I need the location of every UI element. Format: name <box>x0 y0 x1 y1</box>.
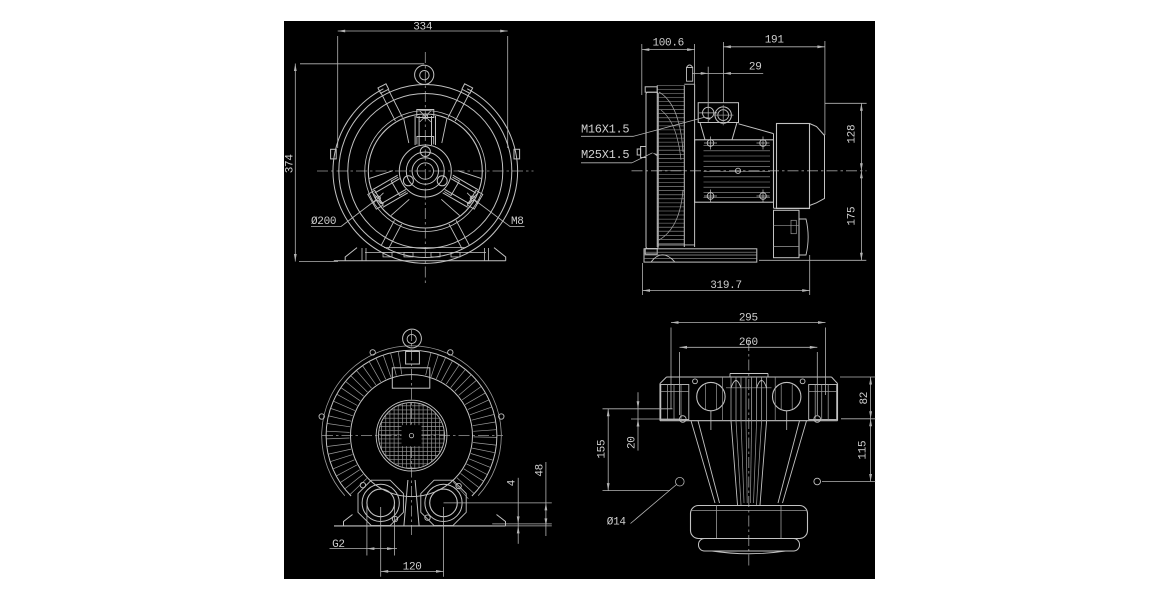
svg-text:374: 374 <box>284 154 296 174</box>
svg-text:295: 295 <box>739 312 758 324</box>
svg-text:100.6: 100.6 <box>652 38 684 50</box>
svg-text:20: 20 <box>626 436 638 449</box>
svg-text:155: 155 <box>596 440 608 459</box>
svg-text:82: 82 <box>859 392 871 405</box>
svg-text:M25X1.5: M25X1.5 <box>581 148 629 162</box>
svg-text:29: 29 <box>749 61 762 73</box>
svg-text:191: 191 <box>765 35 785 47</box>
svg-text:120: 120 <box>403 561 422 573</box>
svg-text:128: 128 <box>847 125 859 144</box>
svg-text:48: 48 <box>534 464 546 477</box>
svg-text:175: 175 <box>847 207 859 226</box>
svg-text:M16X1.5: M16X1.5 <box>581 123 629 137</box>
svg-text:260: 260 <box>739 337 758 349</box>
svg-text:334: 334 <box>413 22 433 34</box>
svg-text:4: 4 <box>506 479 518 486</box>
svg-text:115: 115 <box>857 441 869 460</box>
svg-text:G2: G2 <box>332 539 345 551</box>
svg-text:319.7: 319.7 <box>710 280 742 292</box>
svg-text:Ø14: Ø14 <box>607 517 627 529</box>
